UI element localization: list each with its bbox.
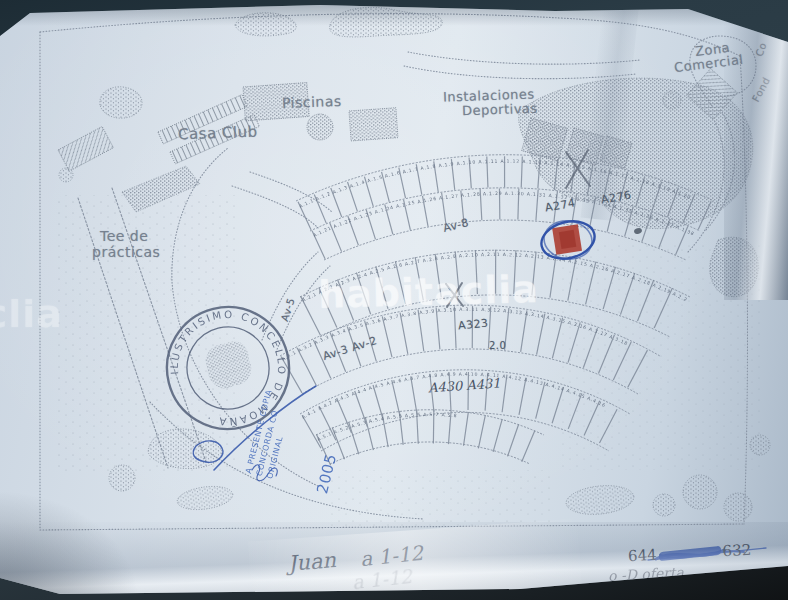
blob-br-2: [683, 475, 717, 509]
blob-zc: [663, 91, 681, 109]
speckle-right-fairway: [560, 240, 760, 470]
ticks-band5: [323, 426, 537, 450]
paper-plan: A.1.1 A.1.2 A.1.3 A.1.4 A.1.5 A.1.6 A.1.…: [0, 0, 788, 600]
road-top-1: [408, 52, 640, 64]
label-casa-club: Casa Club: [178, 123, 258, 144]
pool-circle: [307, 114, 333, 140]
label-tee-1: Tee de: [100, 228, 148, 244]
grove-left: [100, 87, 142, 118]
speckle-bottom: [330, 470, 550, 530]
blob-br-4: [653, 494, 675, 516]
label-tee-2: prácticas: [92, 244, 160, 260]
road-link-2: [232, 186, 318, 228]
watermark-partial: habitaclia: [0, 292, 63, 336]
blob-bl-3: [176, 483, 235, 513]
pen-blot: [658, 546, 720, 562]
band5-inner: [330, 442, 530, 464]
dot-mark: [633, 227, 642, 235]
terrain-stipple: [55, 7, 770, 530]
club-building: [58, 127, 113, 172]
label-20: 2.0: [489, 340, 506, 351]
blob-br-1: [565, 483, 636, 518]
phone-suffix: 632: [722, 541, 752, 560]
watermark-text: habitaclia: [317, 267, 539, 317]
red-plot-core: [559, 230, 576, 249]
blob-br-3: [724, 493, 752, 521]
handwriting-name: Juan: [287, 548, 337, 576]
label-instalaciones-2: Deportivas: [462, 101, 538, 119]
pool-rect-2: [349, 108, 398, 141]
label-piscinas: Piscinas: [282, 93, 342, 111]
handwriting-offer: o -D oferta: [608, 564, 685, 584]
pond-top: [330, 7, 443, 37]
photo-background: A.1.1 A.1.2 A.1.3 A.1.4 A.1.5 A.1.6 A.1.…: [0, 0, 788, 600]
phone-prefix: 644: [628, 546, 658, 565]
road-top-2: [404, 66, 636, 79]
